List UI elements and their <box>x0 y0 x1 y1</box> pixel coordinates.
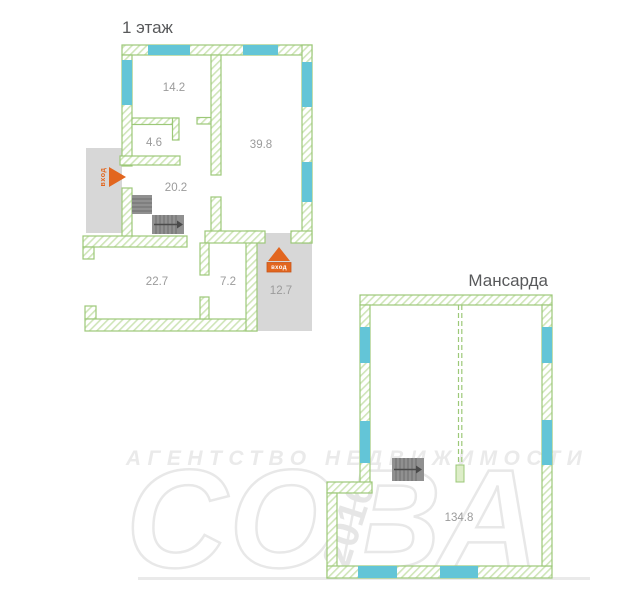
room-area-label: 22.7 <box>146 276 168 288</box>
attic-stairs-icon <box>392 458 424 481</box>
window-icon <box>148 45 190 55</box>
window-icon <box>360 421 370 463</box>
floor1-partitions <box>120 55 265 319</box>
room-area-label: 12.7 <box>270 285 292 297</box>
window-icon <box>358 566 397 578</box>
window-icon <box>360 327 370 363</box>
room-area-label: 4.6 <box>146 137 162 149</box>
floor1-entry-porch <box>257 233 312 331</box>
room-area-label: 7.2 <box>220 276 236 288</box>
window-icon <box>542 327 552 363</box>
floor1-title: 1 этаж <box>122 18 174 37</box>
side-entrance-label: вход <box>100 167 107 186</box>
floorplan-image: АГЕНТСТВО НЕДВИЖИМОСТИ СОВА 2016 1 этаж <box>0 0 619 600</box>
floor1-stairs-icon <box>132 195 184 234</box>
main-entrance-label: вход <box>271 265 287 271</box>
window-icon <box>302 162 312 202</box>
room-area-label: 20.2 <box>165 182 187 194</box>
room-area-label: 39.8 <box>250 139 272 151</box>
floor1-side-entrance: вход <box>100 167 126 187</box>
window-icon <box>122 60 132 105</box>
window-icon <box>542 420 552 465</box>
floor1-side-porch <box>86 148 122 233</box>
room-area-label: 134.8 <box>445 512 474 524</box>
window-icon <box>243 45 278 55</box>
window-icon <box>440 566 478 578</box>
window-icon <box>302 62 312 107</box>
room-area-label: 14.2 <box>163 82 185 94</box>
floor1-plan: 1 этаж <box>83 18 312 331</box>
floorplan-svg: АГЕНТСТВО НЕДВИЖИМОСТИ СОВА 2016 1 этаж <box>0 0 619 600</box>
attic-title: Мансарда <box>468 271 548 290</box>
